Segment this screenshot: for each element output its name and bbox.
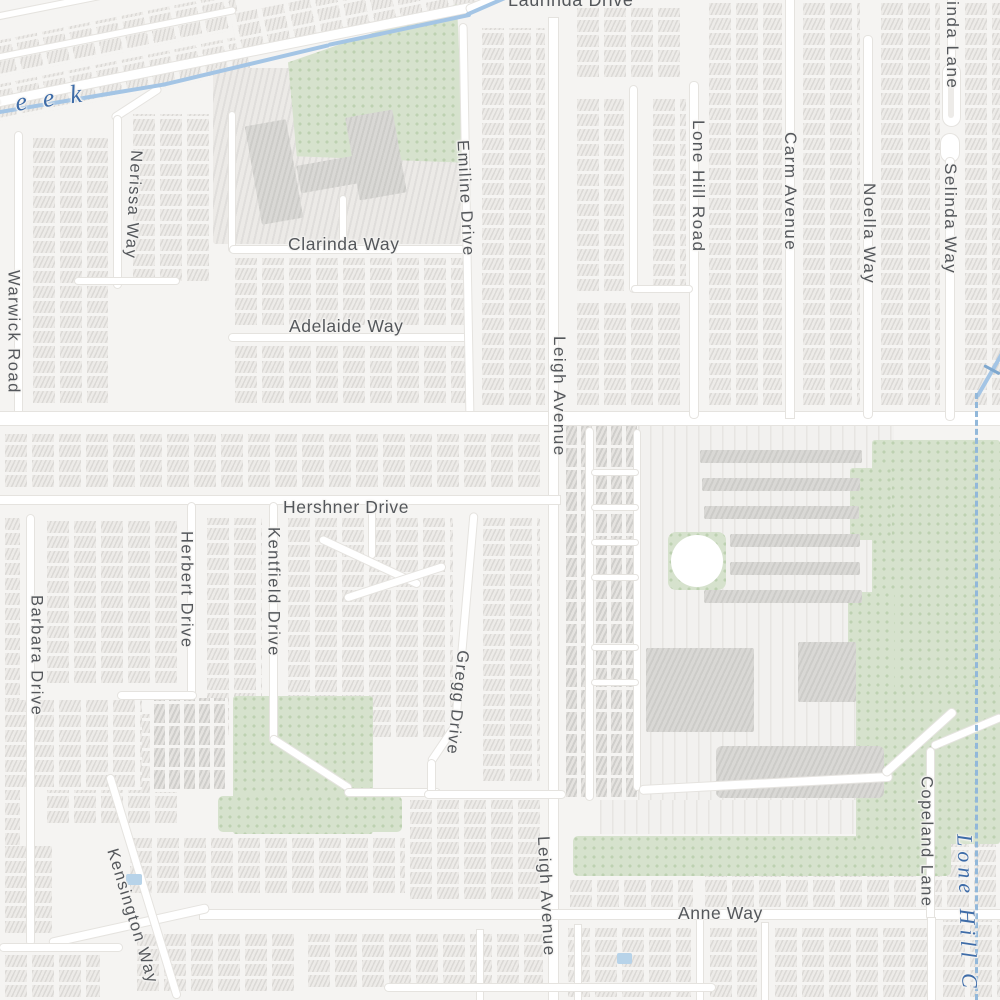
residential-block xyxy=(0,846,52,936)
residential-block xyxy=(960,0,1000,408)
road-apartment-lane xyxy=(634,430,640,790)
road-copeland-south xyxy=(928,918,935,1000)
street-label-hershner-drive: Hershner Drive xyxy=(283,499,409,517)
road-hershner xyxy=(0,496,560,504)
road-branch xyxy=(592,645,638,650)
residential-block xyxy=(0,434,543,490)
map-canvas[interactable]: Laurinda Drive reek Warwick Road Nerissa… xyxy=(0,0,1000,1000)
road-apartment-lane xyxy=(586,428,593,800)
street-label-adelaide-way: Adelaide Way xyxy=(289,318,404,336)
street-label-clarinda-way: Clarinda Way xyxy=(288,236,400,254)
residential-block xyxy=(0,518,20,878)
large-building xyxy=(716,746,884,798)
residential-block xyxy=(572,300,684,408)
street-label-noella-way: Noella Way xyxy=(861,183,878,284)
residential-block xyxy=(565,878,693,910)
road-nerissa xyxy=(114,116,121,288)
road-stub xyxy=(632,286,692,292)
residential-block xyxy=(0,700,142,790)
road-branch xyxy=(592,505,638,510)
road-nerissa-stub xyxy=(75,278,179,284)
residential-block xyxy=(704,0,782,408)
road-barbara xyxy=(27,515,34,945)
creek-label-lone-hill: Lone Hill C xyxy=(953,834,981,994)
street-label-warwick-road: Warwick Road xyxy=(5,270,22,394)
road-branch xyxy=(592,540,638,545)
residential-block xyxy=(478,518,540,784)
street-label-herbert-drive: Herbert Drive xyxy=(178,531,195,649)
street-label-kentfield-drive: Kentfield Drive xyxy=(265,527,282,657)
residential-block xyxy=(876,0,940,408)
street-label-selinda-way: Selinda Way xyxy=(942,163,959,274)
street-label-lone-hill-road: Lone Hill Road xyxy=(690,120,707,253)
apartment-block xyxy=(150,698,228,792)
road-segment xyxy=(762,923,768,1000)
street-label-laurinda-drive: Laurinda Drive xyxy=(508,0,633,9)
road-side-street xyxy=(630,86,637,292)
residential-block xyxy=(572,98,624,294)
residential-block xyxy=(572,8,684,80)
building-row xyxy=(702,478,860,491)
large-building xyxy=(646,648,754,732)
street-label-leigh-avenue-north: Leigh Avenue xyxy=(551,336,568,457)
road-stub xyxy=(229,112,235,252)
pool xyxy=(617,953,632,964)
residential-block xyxy=(125,838,413,896)
street-label-anne-way: Anne Way xyxy=(678,905,763,923)
road-branch xyxy=(592,470,638,475)
street-label-carm-avenue: Carm Avenue xyxy=(782,132,799,251)
large-building xyxy=(798,642,856,702)
greenbelt xyxy=(218,796,402,832)
road-segment xyxy=(385,984,715,991)
street-label-clarinda-lane: Clarinda Lane xyxy=(944,0,961,89)
road-herbert-curve xyxy=(118,692,196,699)
residential-block xyxy=(303,934,543,990)
residential-block xyxy=(405,800,543,902)
residential-block xyxy=(42,520,180,686)
residential-block xyxy=(770,928,930,1000)
road-branch xyxy=(592,680,638,685)
residential-block xyxy=(798,0,860,408)
road-connector xyxy=(0,944,122,951)
building-row xyxy=(704,590,862,603)
building-row xyxy=(730,534,860,547)
road-segment xyxy=(425,791,565,798)
building-row xyxy=(700,450,862,463)
residential-block xyxy=(230,344,466,406)
road-anne-way xyxy=(200,910,1000,919)
residential-block xyxy=(0,954,100,1000)
residential-block xyxy=(648,98,686,294)
apartment-complex xyxy=(562,426,640,800)
courtyard-circle xyxy=(671,535,723,587)
street-label-barbara-drive: Barbara Drive xyxy=(28,595,45,716)
residential-block xyxy=(477,28,545,408)
road-main-arterial xyxy=(0,412,1000,425)
road-branch xyxy=(592,575,638,580)
building-row xyxy=(730,562,860,575)
building-row xyxy=(704,506,859,519)
residential-block xyxy=(28,138,108,406)
street-label-copeland-lane: Copeland Lane xyxy=(918,776,935,907)
